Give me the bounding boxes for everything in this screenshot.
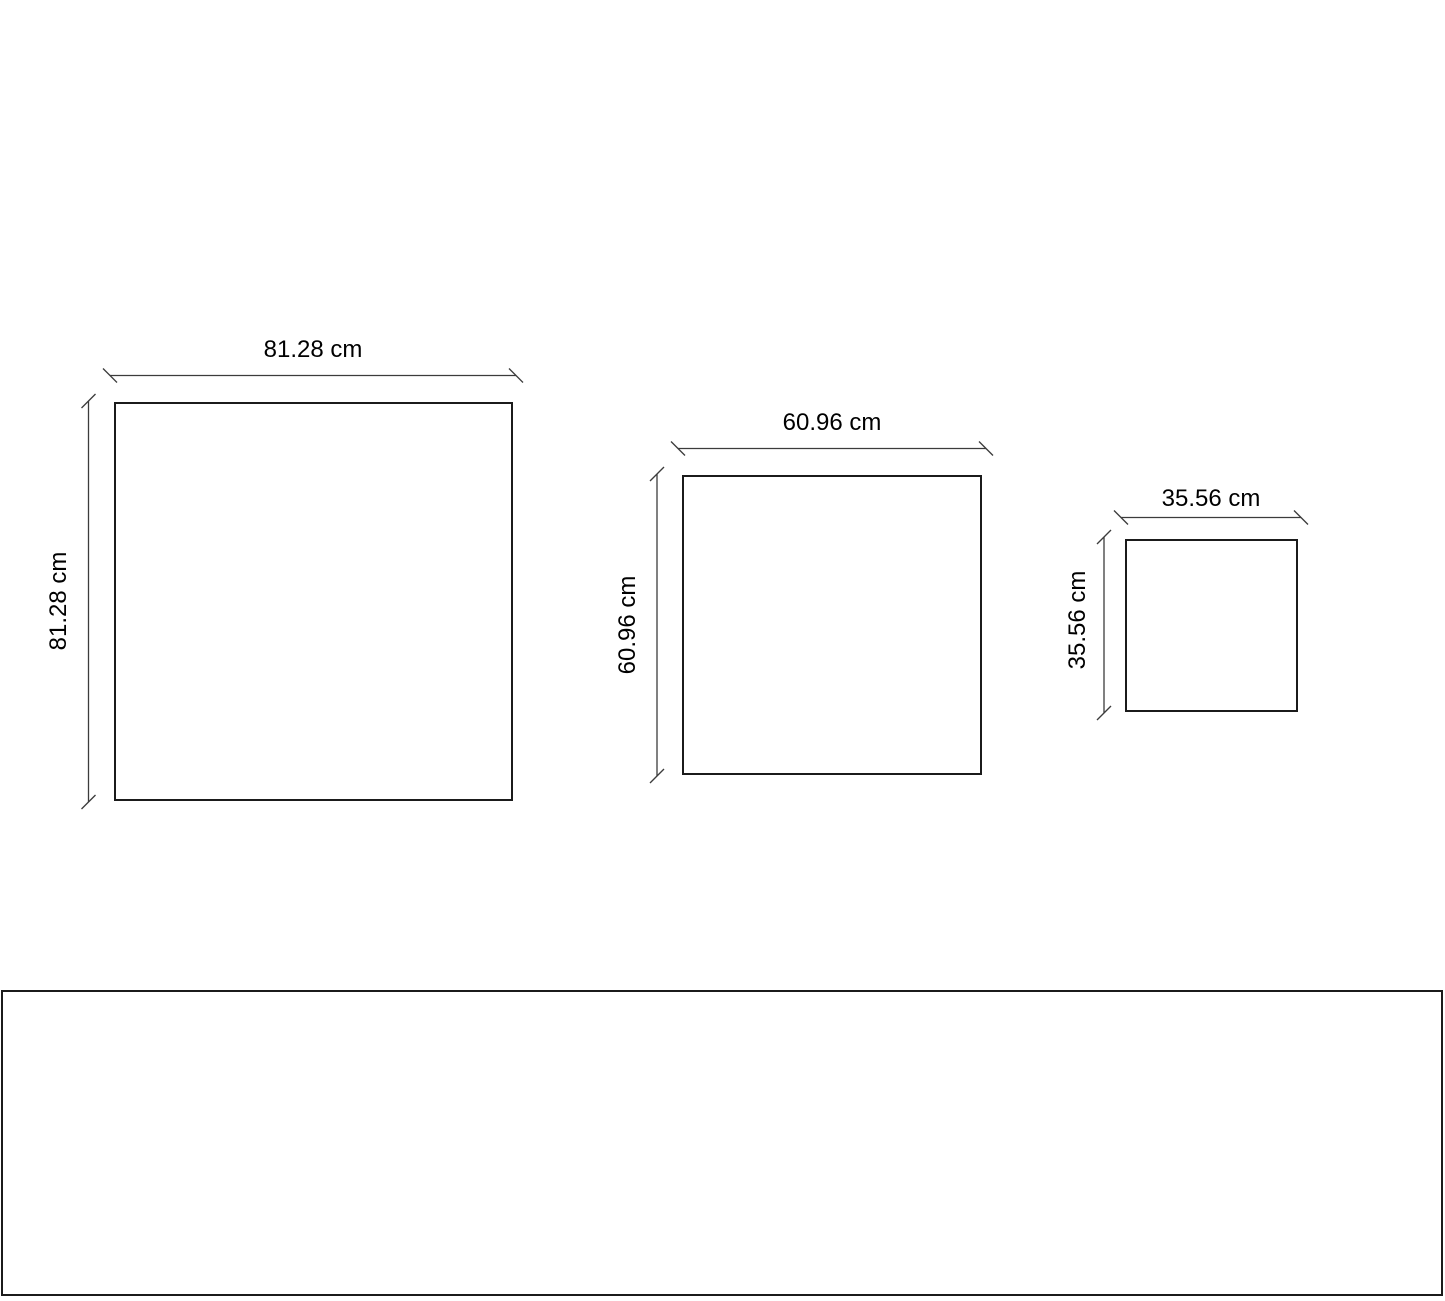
height-dimension-label-medium: 60.96 cm: [616, 576, 640, 675]
height-dimension-line-large: [82, 394, 96, 809]
baseline-panel: [1, 990, 1443, 1296]
width-dimension-line-medium: [671, 442, 993, 456]
width-dimension-line-large: [103, 369, 523, 383]
square-medium: [682, 475, 982, 775]
square-small: [1125, 539, 1298, 712]
width-dimension-line-small: [1114, 511, 1308, 525]
square-large: [114, 402, 513, 801]
height-dimension-line-medium: [650, 467, 664, 783]
width-dimension-label-medium: 60.96 cm: [783, 411, 882, 435]
width-dimension-label-small: 35.56 cm: [1162, 487, 1261, 511]
height-dimension-label-large: 81.28 cm: [47, 552, 71, 651]
height-dimension-line-small: [1097, 530, 1111, 720]
width-dimension-label-large: 81.28 cm: [264, 338, 363, 362]
drawing-canvas: 81.28 cm 81.28 cm 60.96 cm 60.96 cm 35.5…: [0, 0, 1445, 1301]
height-dimension-label-small: 35.56 cm: [1066, 571, 1090, 670]
